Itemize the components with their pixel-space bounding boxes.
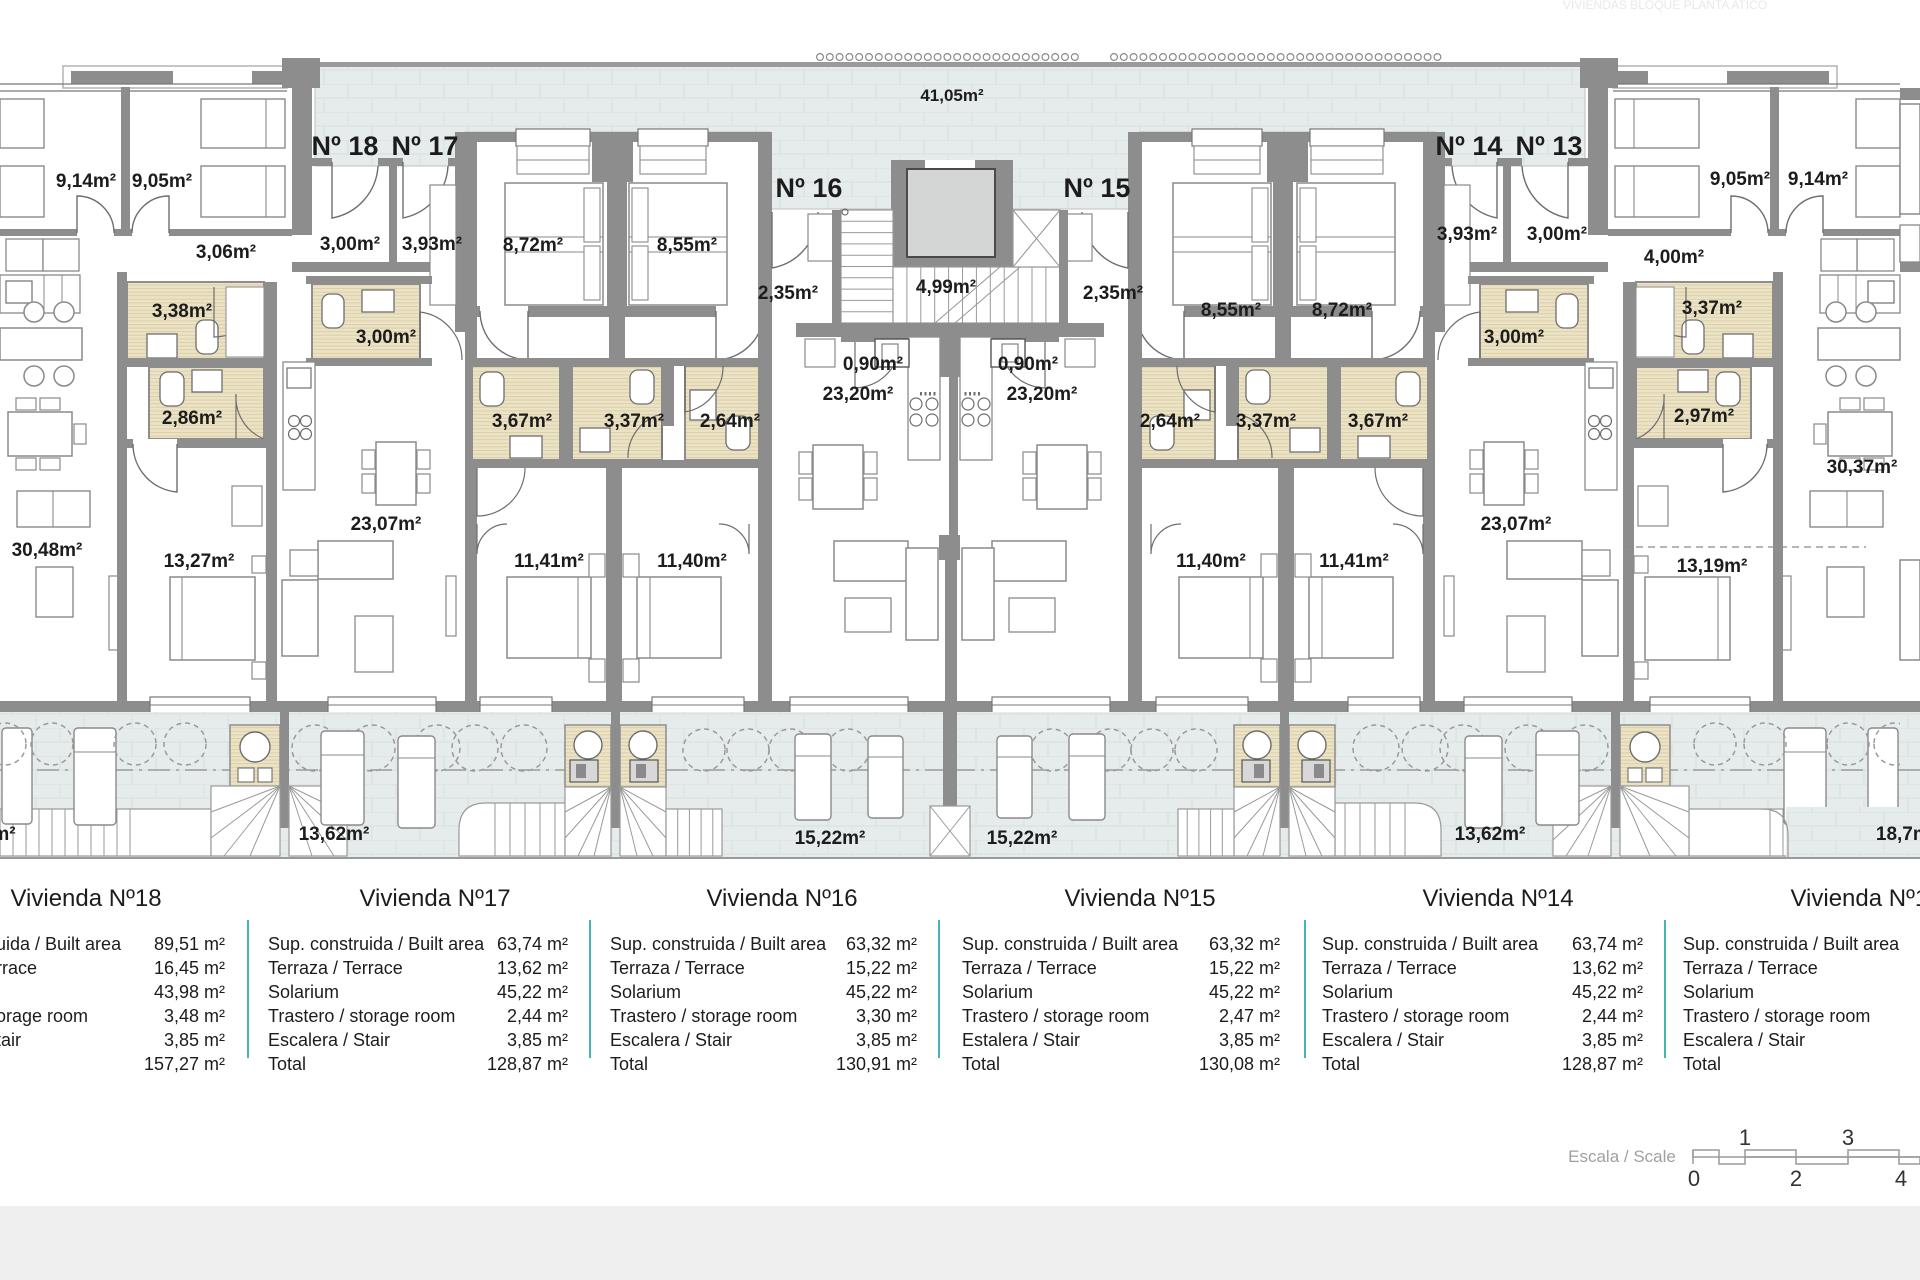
svg-text:Solarium: Solarium <box>1683 982 1754 1002</box>
svg-text:130,91 m²: 130,91 m² <box>836 1054 917 1074</box>
svg-text:2,86m²: 2,86m² <box>162 408 222 429</box>
svg-text:63,74 m²: 63,74 m² <box>497 934 568 954</box>
svg-text:63,32 m²: 63,32 m² <box>846 934 917 954</box>
svg-text:3,85 m²: 3,85 m² <box>856 1030 917 1050</box>
svg-text:Solarium: Solarium <box>1322 982 1393 1002</box>
svg-text:Nº 17: Nº 17 <box>392 131 459 161</box>
svg-text:13,62m²: 13,62m² <box>299 824 370 845</box>
svg-text:30,37m²: 30,37m² <box>1827 457 1898 478</box>
svg-text:Escalera / Stair: Escalera / Stair <box>268 1030 390 1050</box>
svg-text:Nº 13: Nº 13 <box>1516 131 1583 161</box>
svg-text:8,55m²: 8,55m² <box>1201 300 1261 321</box>
svg-text:3,30 m²: 3,30 m² <box>856 1006 917 1026</box>
svg-text:16,45 m²: 16,45 m² <box>154 958 225 978</box>
svg-text:4,00m²: 4,00m² <box>1644 247 1704 268</box>
svg-text:11,40m²: 11,40m² <box>657 551 727 572</box>
svg-text:3,85 m²: 3,85 m² <box>1219 1030 1280 1050</box>
svg-text:Solarium: Solarium <box>268 982 339 1002</box>
svg-text:Sup. construida / Built area: Sup. construida / Built area <box>610 934 827 954</box>
svg-text:orage room: orage room <box>0 1006 88 1026</box>
svg-text:Terraza / Terrace: Terraza / Terrace <box>1683 958 1818 978</box>
svg-text:2,35m²: 2,35m² <box>1083 283 1143 304</box>
svg-text:2,47 m²: 2,47 m² <box>1219 1006 1280 1026</box>
svg-text:Nº 16: Nº 16 <box>776 173 843 203</box>
svg-text:3,00m²: 3,00m² <box>1527 224 1587 245</box>
svg-text:8,72m²: 8,72m² <box>503 235 563 256</box>
svg-text:m²: m² <box>0 824 16 845</box>
svg-text:Terraza / Terrace: Terraza / Terrace <box>610 958 745 978</box>
svg-text:Vivienda Nº17: Vivienda Nº17 <box>359 885 510 912</box>
svg-text:63,74 m²: 63,74 m² <box>1572 934 1643 954</box>
svg-text:13,19m²: 13,19m² <box>1677 556 1748 577</box>
svg-text:0: 0 <box>1688 1166 1700 1191</box>
svg-text:0,90m²: 0,90m² <box>843 354 903 375</box>
svg-text:Vivienda Nº16: Vivienda Nº16 <box>706 885 857 912</box>
svg-text:Solarium: Solarium <box>962 982 1033 1002</box>
svg-text:30,48m²: 30,48m² <box>12 540 83 561</box>
svg-text:130,08 m²: 130,08 m² <box>1199 1054 1280 1074</box>
svg-text:1: 1 <box>1739 1125 1751 1150</box>
svg-text:3,48 m²: 3,48 m² <box>164 1006 225 1026</box>
svg-text:2,64m²: 2,64m² <box>700 411 760 432</box>
svg-text:3,93m²: 3,93m² <box>1437 224 1497 245</box>
svg-text:2,44 m²: 2,44 m² <box>1582 1006 1643 1026</box>
svg-text:3,85 m²: 3,85 m² <box>1582 1030 1643 1050</box>
svg-text:23,07m²: 23,07m² <box>1481 514 1552 535</box>
svg-text:157,27 m²: 157,27 m² <box>144 1054 225 1074</box>
svg-text:4: 4 <box>1895 1166 1907 1191</box>
svg-text:Nº 15: Nº 15 <box>1064 173 1131 203</box>
svg-text:uida / Built area: uida / Built area <box>0 934 122 954</box>
svg-text:Vivienda Nº14: Vivienda Nº14 <box>1422 885 1573 912</box>
svg-text:Total: Total <box>1683 1054 1721 1074</box>
svg-text:3: 3 <box>1842 1125 1854 1150</box>
svg-text:Sup. construida / Built area: Sup. construida / Built area <box>1322 934 1539 954</box>
svg-text:45,22 m²: 45,22 m² <box>1572 982 1643 1002</box>
svg-text:9,05m²: 9,05m² <box>1710 169 1770 190</box>
svg-text:Total: Total <box>610 1054 648 1074</box>
svg-text:Total: Total <box>962 1054 1000 1074</box>
svg-text:Trastero / storage room: Trastero / storage room <box>962 1006 1149 1026</box>
svg-text:9,05m²: 9,05m² <box>132 171 192 192</box>
svg-text:23,07m²: 23,07m² <box>351 514 422 535</box>
svg-text:Terraza / Terrace: Terraza / Terrace <box>268 958 403 978</box>
svg-text:13,27m²: 13,27m² <box>164 551 235 572</box>
svg-text:128,87 m²: 128,87 m² <box>1562 1054 1643 1074</box>
svg-text:3,37m²: 3,37m² <box>1236 411 1296 432</box>
svg-text:Terraza / Terrace: Terraza / Terrace <box>1322 958 1457 978</box>
svg-text:Vivienda Nº18: Vivienda Nº18 <box>10 885 161 912</box>
svg-text:3,06m²: 3,06m² <box>196 242 256 263</box>
svg-text:Trastero / storage room: Trastero / storage room <box>1683 1006 1870 1026</box>
svg-text:Escalera / Stair: Escalera / Stair <box>1683 1030 1805 1050</box>
svg-text:15,22 m²: 15,22 m² <box>846 958 917 978</box>
svg-text:3,00m²: 3,00m² <box>1484 327 1544 348</box>
svg-text:Escalera / Stair: Escalera / Stair <box>1322 1030 1444 1050</box>
svg-text:3,37m²: 3,37m² <box>604 411 664 432</box>
svg-text:8,55m²: 8,55m² <box>657 235 717 256</box>
svg-text:13,62 m²: 13,62 m² <box>1572 958 1643 978</box>
svg-text:Total: Total <box>1322 1054 1360 1074</box>
svg-text:13,62m²: 13,62m² <box>1455 824 1526 845</box>
svg-text:Trastero / storage room: Trastero / storage room <box>1322 1006 1509 1026</box>
svg-text:8,72m²: 8,72m² <box>1312 300 1372 321</box>
svg-text:11,41m²: 11,41m² <box>514 551 584 572</box>
svg-text:128,87 m²: 128,87 m² <box>487 1054 568 1074</box>
svg-text:45,22 m²: 45,22 m² <box>1209 982 1280 1002</box>
svg-text:9,14m²: 9,14m² <box>56 171 116 192</box>
svg-text:tair: tair <box>0 1030 21 1050</box>
svg-text:3,37m²: 3,37m² <box>1682 298 1742 319</box>
svg-text:Vivienda Nº15: Vivienda Nº15 <box>1064 885 1215 912</box>
svg-text:3,85 m²: 3,85 m² <box>164 1030 225 1050</box>
svg-text:Nº 14: Nº 14 <box>1436 131 1503 161</box>
svg-text:Nº 18: Nº 18 <box>312 131 379 161</box>
svg-text:3,67m²: 3,67m² <box>492 411 552 432</box>
svg-text:0,90m²: 0,90m² <box>998 354 1058 375</box>
svg-text:23,20m²: 23,20m² <box>1007 384 1078 405</box>
svg-text:Sup. construida / Built area: Sup. construida / Built area <box>1683 934 1900 954</box>
svg-text:rrace: rrace <box>0 958 37 978</box>
svg-text:11,41m²: 11,41m² <box>1319 551 1389 572</box>
svg-text:Terraza / Terrace: Terraza / Terrace <box>962 958 1097 978</box>
svg-text:Solarium: Solarium <box>610 982 681 1002</box>
svg-text:89,51 m²: 89,51 m² <box>154 934 225 954</box>
svg-text:Sup. construida / Built area: Sup. construida / Built area <box>268 934 485 954</box>
svg-text:23,20m²: 23,20m² <box>823 384 894 405</box>
svg-text:Vivienda Nº13: Vivienda Nº13 <box>1790 885 1920 912</box>
svg-text:15,22m²: 15,22m² <box>795 828 866 849</box>
svg-text:15,22m²: 15,22m² <box>987 828 1058 849</box>
svg-text:13,62 m²: 13,62 m² <box>497 958 568 978</box>
svg-text:41,05m²: 41,05m² <box>920 86 984 105</box>
svg-text:45,22 m²: 45,22 m² <box>497 982 568 1002</box>
svg-text:Sup. construida / Built area: Sup. construida / Built area <box>962 934 1179 954</box>
svg-text:Estalera / Stair: Estalera / Stair <box>962 1030 1080 1050</box>
svg-text:3,85 m²: 3,85 m² <box>507 1030 568 1050</box>
svg-text:2,97m²: 2,97m² <box>1674 406 1734 427</box>
svg-text:45,22 m²: 45,22 m² <box>846 982 917 1002</box>
svg-text:Trastero / storage room: Trastero / storage room <box>268 1006 455 1026</box>
svg-text:15,22 m²: 15,22 m² <box>1209 958 1280 978</box>
svg-text:Escala / Scale: Escala / Scale <box>1568 1147 1676 1166</box>
svg-text:Trastero / storage room: Trastero / storage room <box>610 1006 797 1026</box>
svg-text:Escalera / Stair: Escalera / Stair <box>610 1030 732 1050</box>
svg-text:43,98 m²: 43,98 m² <box>154 982 225 1002</box>
svg-text:2,44 m²: 2,44 m² <box>507 1006 568 1026</box>
svg-text:11,40m²: 11,40m² <box>1176 551 1246 572</box>
svg-text:3,00m²: 3,00m² <box>356 327 416 348</box>
svg-text:4,99m²: 4,99m² <box>916 277 976 298</box>
svg-text:2,35m²: 2,35m² <box>758 283 818 304</box>
svg-text:9,14m²: 9,14m² <box>1788 169 1848 190</box>
svg-text:Total: Total <box>268 1054 306 1074</box>
svg-text:2: 2 <box>1790 1166 1802 1191</box>
svg-text:3,00m²: 3,00m² <box>320 234 380 255</box>
svg-text:63,32 m²: 63,32 m² <box>1209 934 1280 954</box>
svg-text:18,7m²: 18,7m² <box>1876 824 1920 845</box>
svg-text:3,38m²: 3,38m² <box>152 301 212 322</box>
svg-text:3,93m²: 3,93m² <box>402 234 462 255</box>
svg-text:3,67m²: 3,67m² <box>1348 411 1408 432</box>
svg-text:VIVIENDAS BLOQUE PLANTA ATICO: VIVIENDAS BLOQUE PLANTA ATICO <box>1563 0 1767 12</box>
svg-text:2,64m²: 2,64m² <box>1140 411 1200 432</box>
